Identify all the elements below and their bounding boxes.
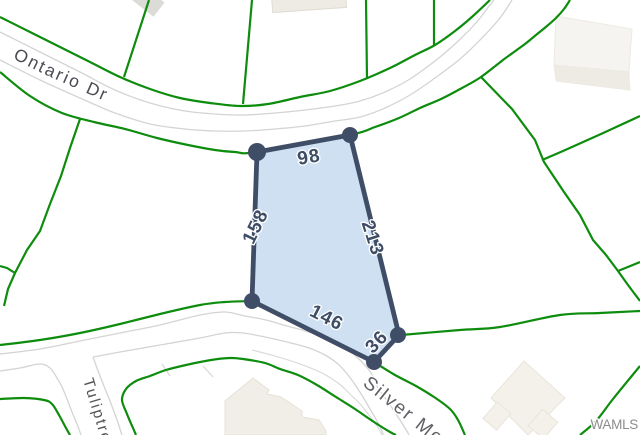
svg-text:WAMLS: WAMLS [590,417,638,432]
svg-text:98: 98 [296,145,322,170]
